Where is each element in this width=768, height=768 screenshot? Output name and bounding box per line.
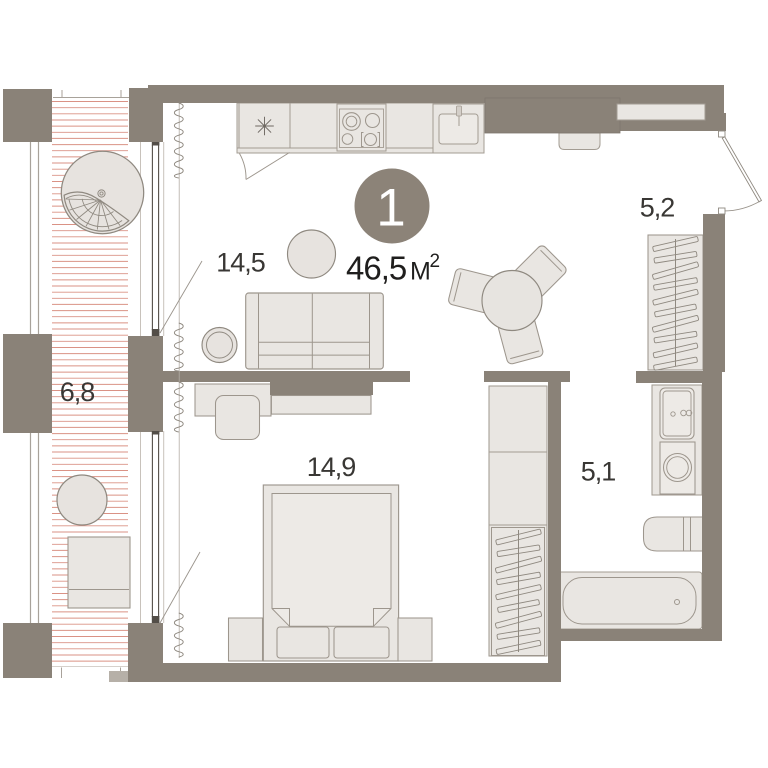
svg-text:5,2: 5,2	[640, 193, 675, 223]
svg-text:46,5: 46,5	[346, 250, 406, 287]
svg-text:6,8: 6,8	[60, 377, 95, 407]
svg-text:14,5: 14,5	[216, 248, 265, 278]
svg-text:2: 2	[430, 251, 441, 272]
svg-text:14,9: 14,9	[307, 452, 356, 482]
svg-text:1: 1	[376, 179, 405, 238]
svg-text:М: М	[410, 258, 431, 286]
svg-text:5,1: 5,1	[581, 457, 616, 487]
